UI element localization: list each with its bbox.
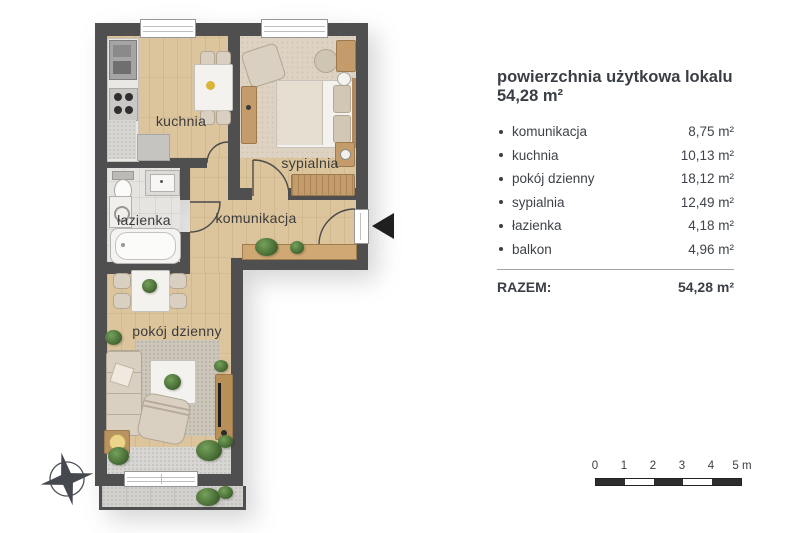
legend-title-line2: 54,28 m² — [497, 87, 563, 105]
compass-icon — [38, 450, 96, 508]
legend-item-value: 4,18 m² — [688, 218, 734, 233]
fridge — [109, 40, 137, 80]
dining-chair — [113, 273, 131, 289]
bullet-icon — [499, 153, 503, 157]
legend-title-line1: powierzchnia użytkowa lokalu — [497, 68, 733, 86]
room-label-sypialnia: sypialnia — [281, 155, 338, 171]
legend-item: łazienka 4,18 m² — [497, 214, 734, 238]
bedroom-shelf — [241, 86, 257, 144]
legend-item-value: 8,75 m² — [688, 124, 734, 139]
legend-item-label: kuchnia — [512, 148, 681, 163]
scale-label: 3 — [679, 460, 685, 472]
entrance-arrow-icon — [370, 212, 398, 240]
bed-headboard — [352, 78, 356, 148]
legend-title: powierzchnia użytkowa lokalu 54,28 m² — [497, 68, 734, 106]
scale-label: 0 — [592, 460, 598, 472]
legend-item: balkon 4,96 m² — [497, 238, 734, 262]
console-plant-icon — [214, 360, 228, 372]
scale-label: 1 — [621, 460, 627, 472]
coffee-table-plant-icon — [164, 374, 181, 390]
room-label-pokoj-dzienny: pokój dzienny — [132, 323, 222, 339]
legend-item-value: 10,13 m² — [681, 148, 734, 163]
bedside-lamp — [337, 72, 351, 86]
dining-chair — [216, 110, 231, 125]
legend-item-value: 18,12 m² — [681, 171, 734, 186]
legend-item-value: 4,96 m² — [688, 242, 734, 257]
legend-item-label: łazienka — [512, 218, 688, 233]
armchair — [136, 392, 193, 447]
bathtub — [110, 228, 181, 264]
legend-item-label: balkon — [512, 242, 688, 257]
bullet-icon — [499, 130, 503, 134]
legend-item: pokój dzienny 18,12 m² — [497, 167, 734, 191]
livingroom-plant-icon — [105, 330, 122, 345]
legend-item: sypialnia 12,49 m² — [497, 191, 734, 215]
scale-label: 4 — [708, 460, 714, 472]
legend-item-label: sypialnia — [512, 195, 681, 210]
bullet-icon — [499, 224, 503, 228]
legend-item-value: 12,49 m² — [681, 195, 734, 210]
livingroom-plant-icon — [108, 447, 129, 465]
legend-item-label: komunikacja — [512, 124, 688, 139]
wardrobe — [291, 174, 355, 196]
legend-total-label: RAZEM: — [497, 279, 551, 295]
tv-console — [215, 374, 233, 440]
bullet-icon — [499, 177, 503, 181]
floorplan-page: kuchnia sypialnia łazienka komunikacja p… — [0, 0, 800, 533]
scale-bar-segments — [595, 478, 742, 486]
legend-item-label: pokój dzienny — [512, 171, 681, 186]
hallway-plant-icon — [290, 241, 304, 254]
bullet-icon — [499, 200, 503, 204]
livingroom-plant-icon — [218, 435, 233, 448]
dining-chair — [169, 273, 187, 289]
room-label-kuchnia: kuchnia — [156, 113, 206, 129]
kitchen-worktop — [108, 120, 136, 159]
dining-chair — [169, 293, 187, 309]
table-plant-icon — [142, 279, 157, 293]
dining-chair — [113, 293, 131, 309]
scale-bar: 0 1 2 3 4 5 m — [595, 460, 755, 490]
kitchen-table — [194, 64, 233, 111]
bullet-icon — [499, 247, 503, 251]
kitchen-corner-cabinet — [137, 134, 170, 161]
scale-label: 2 — [650, 460, 656, 472]
room-label-komunikacja: komunikacja — [215, 210, 296, 226]
hallway-plant-icon — [255, 238, 278, 256]
bed — [276, 80, 354, 148]
legend-total-value: 54,28 m² — [678, 279, 734, 295]
sofa — [106, 350, 142, 436]
pouf — [314, 49, 338, 73]
area-legend: powierzchnia użytkowa lokalu 54,28 m² ko… — [497, 68, 734, 295]
room-label-lazienka: łazienka — [117, 212, 171, 228]
scale-label: 5 m — [732, 460, 751, 472]
stove — [109, 88, 138, 121]
legend-item: komunikacja 8,75 m² — [497, 120, 734, 144]
bathroom-sink — [145, 170, 180, 196]
nightstand — [336, 40, 356, 72]
legend-item: kuchnia 10,13 m² — [497, 144, 734, 168]
legend-total-row: RAZEM: 54,28 m² — [497, 270, 734, 295]
